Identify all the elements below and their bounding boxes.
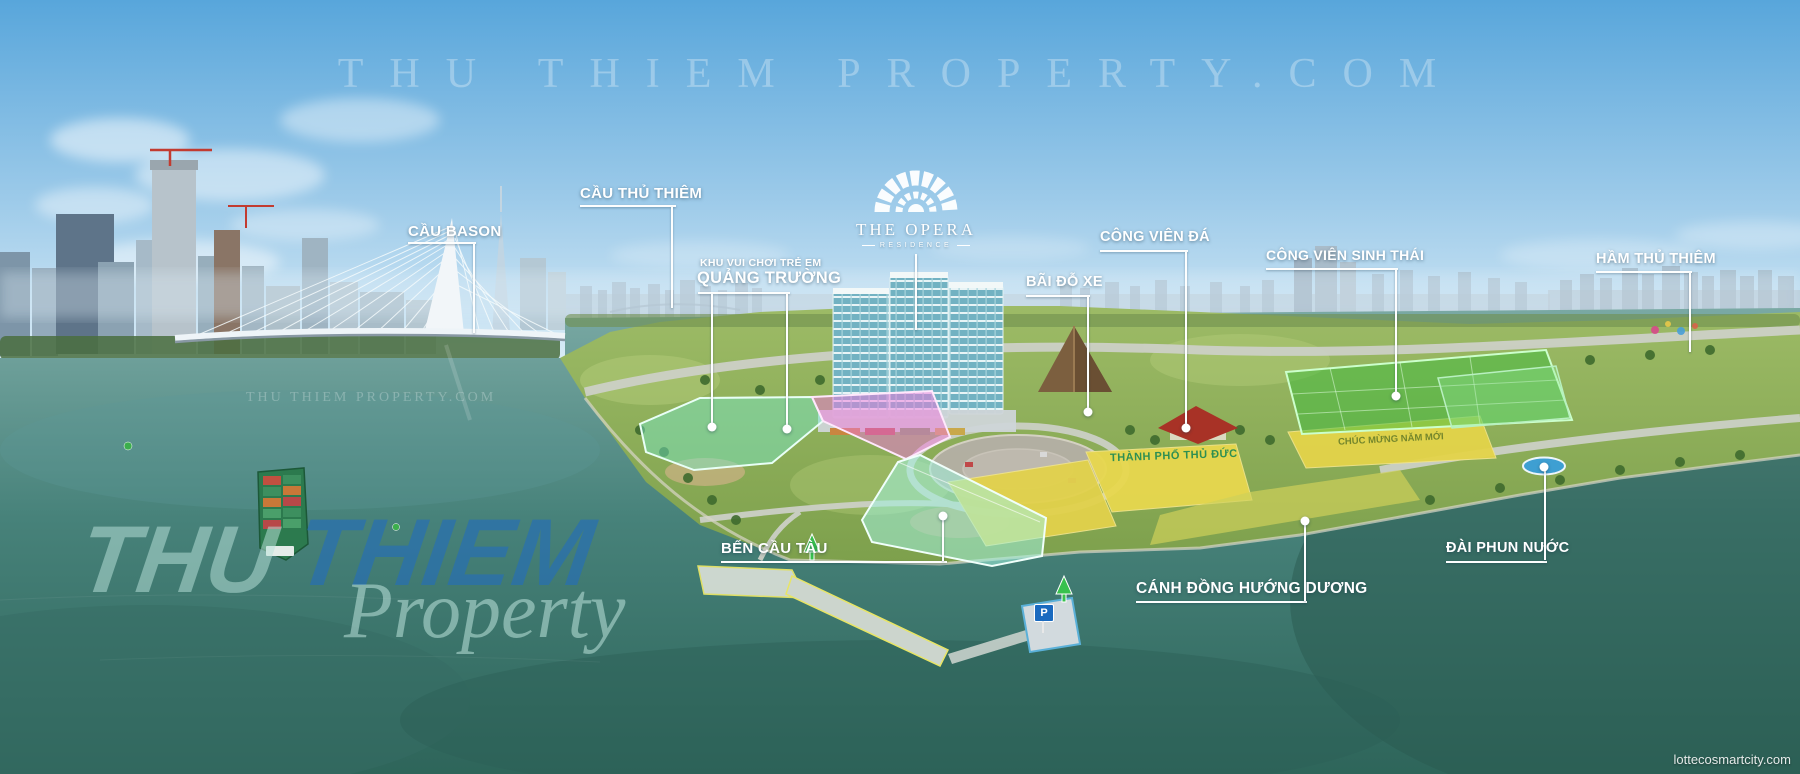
dash-left [862,245,875,246]
leader-khu-vui-choi-left [711,294,713,427]
underline-cau-bason [408,242,476,244]
leader-ham-thu-thiem [1689,273,1691,352]
label-cau-thu-thiem: CẦU THỦ THIÊM [580,186,702,202]
opera-logo-subtitle: RESIDENCE [853,242,979,249]
endpoint-playground [708,423,717,432]
opera-fan-icon [856,168,976,214]
underline-canh-dong-huong-duong [1136,601,1307,603]
underline-ben-cau-tau [721,561,947,563]
parking-sign-pole [1042,621,1044,633]
endpoint-sunflower-field [1301,517,1310,526]
leader-cong-vien-sinh-thai [1395,270,1397,396]
endpoint-stone-park [1182,424,1191,433]
label-ham-thu-thiem: HẦM THỦ THIÊM [1596,252,1716,267]
label-cong-vien-sinh-thai: CÔNG VIÊN SINH THÁI [1266,248,1424,263]
endpoint-fountain [1540,463,1549,472]
label-dai-phun-nuoc: ĐÀI PHUN NƯỚC [1446,541,1569,556]
endpoint-plaza [783,425,792,434]
leader-opera [915,254,917,330]
underline-cong-vien-sinh-thai [1266,268,1398,270]
label-canh-dong-huong-duong: CÁNH ĐỒNG HƯỚNG DƯƠNG [1136,581,1368,597]
label-cong-vien-da: CÔNG VIÊN ĐÁ [1100,230,1210,245]
label-khu-vui-choi-line1: KHU VUI CHƠI TRẺ EM [700,258,821,269]
leader-canh-dong-huong-duong [1304,523,1306,601]
leader-bai-do-xe [1087,297,1089,412]
opera-logo-subtitle-text: RESIDENCE [880,242,952,249]
scene-illustration [0,0,1800,774]
watermark-mid: THU THIEM PROPERTY.COM [246,390,496,406]
label-bai-do-xe: BÃI ĐỖ XE [1026,275,1103,290]
leader-dai-phun-nuoc [1544,470,1546,560]
leader-cong-vien-da [1185,252,1187,428]
underline-cong-vien-da [1100,250,1188,252]
watermark-corner-url: lottecosmartcity.com [1673,752,1791,767]
underline-ham-thu-thiem [1596,271,1692,273]
endpoint-eco-park [1392,392,1401,401]
leader-ben-cau-tau [942,518,944,561]
underline-cau-thu-thiem [580,205,676,207]
opera-residences-logo: THE OPERA RESIDENCE [853,168,979,249]
leader-cau-bason [473,244,475,333]
aerial-photo-canvas: THU THIEM PROPERTY.COM THU THIEM PROPERT… [0,0,1800,774]
underline-bai-do-xe [1026,295,1090,297]
watermark-big-property: Property [344,566,625,657]
leader-cau-thu-thiem [671,207,673,308]
label-khu-vui-choi-line2: QUẢNG TRƯỜNG [697,270,841,287]
watermark-big-thu: THU [72,506,283,615]
endpoint-jetty [939,512,948,521]
opera-logo-title: THE OPERA [853,220,979,240]
label-ben-cau-tau: BẾN CẦU TÀU [721,541,828,557]
label-cau-bason: CẦU BASON [408,224,502,240]
watermark-top: THU THIEM PROPERTY.COM [0,50,1800,98]
parking-sign: P [1034,604,1054,622]
endpoint-parking [1084,408,1093,417]
leader-khu-vui-choi-right [786,294,788,429]
underline-dai-phun-nuoc [1446,561,1547,563]
dash-right [957,245,970,246]
